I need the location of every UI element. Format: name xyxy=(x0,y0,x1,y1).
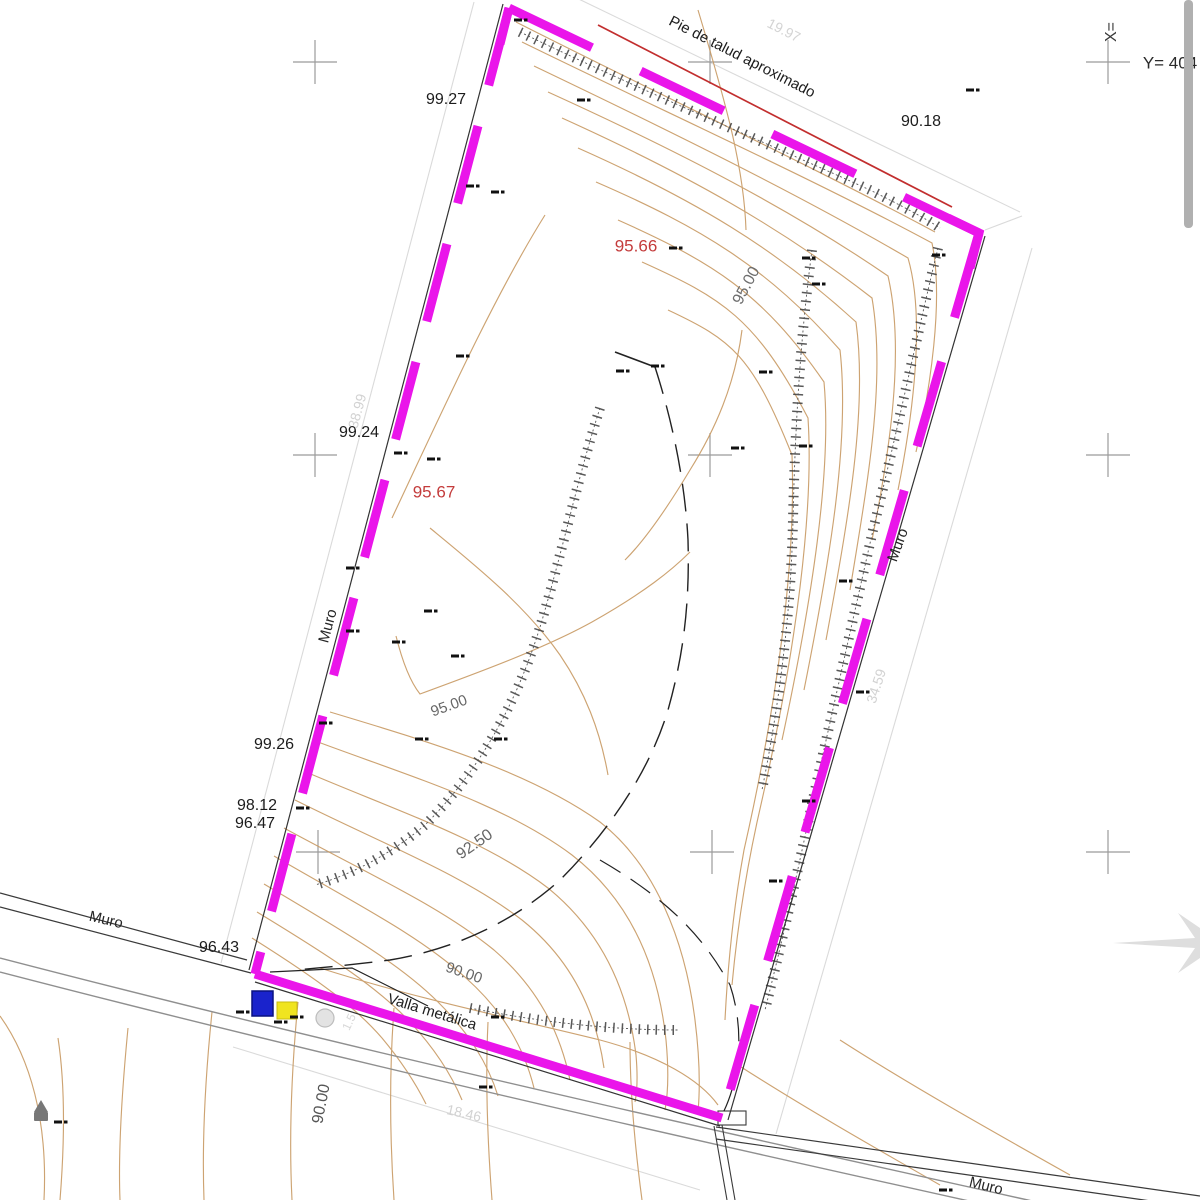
spot-mark-icon xyxy=(731,447,745,450)
spot-mark-icon xyxy=(669,247,683,250)
spot-95-67: 95.67 xyxy=(413,484,456,501)
spot-95-66: 95.66 xyxy=(615,238,658,255)
dimension-lines xyxy=(221,0,1032,1190)
spot-mark-icon xyxy=(932,254,946,257)
spot-mark-icon xyxy=(494,738,508,741)
parcel-boundary xyxy=(255,8,979,1118)
spot-mark-icon xyxy=(966,89,980,92)
level-99-27: 99.27 xyxy=(426,92,466,108)
spot-mark-icon xyxy=(394,452,408,455)
spot-mark-icon xyxy=(54,1121,68,1124)
spot-elevation-marks xyxy=(54,19,980,1192)
level-98-12: 98.12 xyxy=(237,798,277,814)
spot-mark-icon xyxy=(839,580,853,583)
spot-mark-icon xyxy=(491,191,505,194)
level-96-43: 96.43 xyxy=(199,940,239,956)
spot-mark-icon xyxy=(812,283,826,286)
spot-mark-icon xyxy=(466,185,480,188)
spot-mark-icon xyxy=(802,257,816,260)
grid-cross-icon xyxy=(690,830,734,874)
spot-mark-icon xyxy=(616,370,630,373)
boundary-wall-lines xyxy=(249,4,985,1126)
spot-mark-icon xyxy=(577,99,591,102)
spot-mark-icon xyxy=(451,655,465,658)
spot-mark-icon xyxy=(479,1086,493,1089)
grid-cross-icon xyxy=(1086,40,1130,84)
site-plan-viewport: Pie de talud aproximado19.97X=Y= 40490.1… xyxy=(0,0,1200,1200)
spot-mark-icon xyxy=(651,365,665,368)
scrollbar-thumb[interactable] xyxy=(1184,0,1193,228)
compass-star-icon xyxy=(1113,851,1200,1035)
spot-mark-icon xyxy=(424,610,438,613)
spot-mark-icon xyxy=(296,807,310,810)
grid-cross-icon xyxy=(1086,433,1130,477)
grid-cross-icon xyxy=(293,40,337,84)
spot-mark-icon xyxy=(274,1021,288,1024)
level-96-47: 96.47 xyxy=(235,816,275,832)
spot-mark-icon xyxy=(491,1016,505,1019)
spot-mark-icon xyxy=(759,371,773,374)
blue-utility-box xyxy=(252,991,273,1016)
spot-mark-icon xyxy=(290,1016,304,1019)
spot-mark-icon xyxy=(346,630,360,633)
spot-mark-icon xyxy=(802,800,816,803)
spot-mark-icon xyxy=(939,1189,953,1192)
grid-cross-icon xyxy=(1086,830,1130,874)
spot-mark-icon xyxy=(346,567,360,570)
spot-mark-icon xyxy=(514,19,528,22)
manhole-circle-icon xyxy=(316,1009,334,1027)
spot-mark-icon xyxy=(392,641,406,644)
spot-mark-icon xyxy=(415,738,429,741)
site-plan-canvas xyxy=(0,0,1200,1200)
contour-lines xyxy=(0,10,1070,1200)
spot-mark-icon xyxy=(427,458,441,461)
spot-mark-icon xyxy=(456,355,470,358)
grid-cross-icon xyxy=(296,830,340,874)
red-talud-line xyxy=(598,25,952,207)
spot-mark-icon xyxy=(799,445,813,448)
spot-mark-icon xyxy=(319,722,333,725)
coord-x: X= xyxy=(1104,22,1120,42)
grid-cross-icon xyxy=(293,433,337,477)
level-99-26: 99.26 xyxy=(254,737,294,753)
slope-hatch-lines xyxy=(315,32,940,1030)
grid-cross-icon xyxy=(688,433,732,477)
grid-crosses xyxy=(293,40,1130,874)
spot-mark-icon xyxy=(236,1011,250,1014)
small-marker-symbol xyxy=(34,1100,48,1121)
spot-mark-icon xyxy=(769,880,783,883)
level-90-18: 90.18 xyxy=(901,114,941,130)
